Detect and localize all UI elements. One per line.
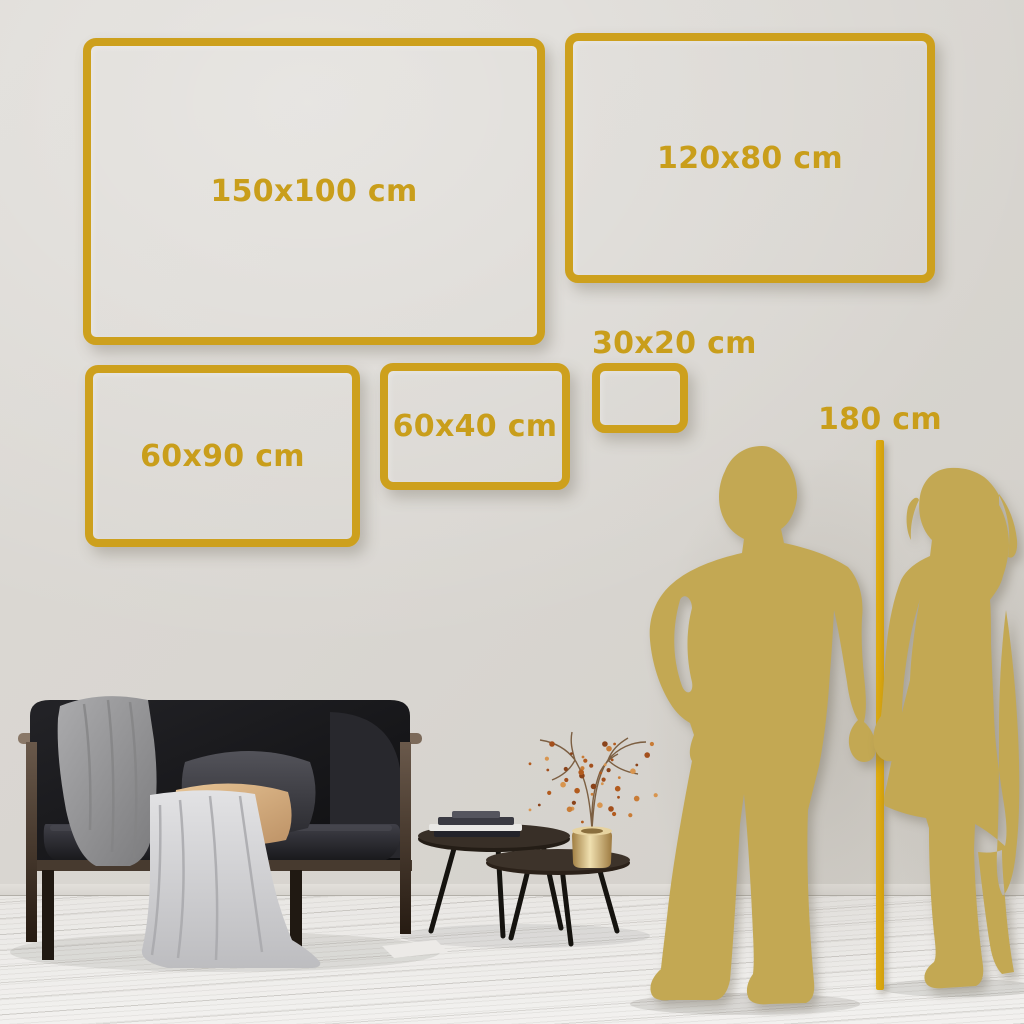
woman-silhouette xyxy=(873,468,1019,989)
size-guide-mockup: 150x100 cm 120x80 cm 60x90 cm 60x40 cm 3… xyxy=(0,0,1024,1024)
couple-silhouette xyxy=(0,0,1024,1024)
man-silhouette xyxy=(650,446,876,1004)
